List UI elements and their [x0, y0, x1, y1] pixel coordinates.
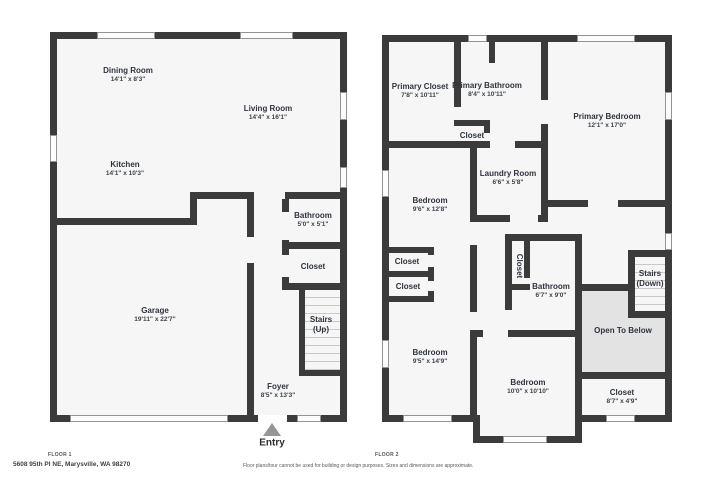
entry-label: Entry	[259, 438, 285, 449]
wall	[285, 192, 347, 199]
window-marker	[468, 35, 487, 42]
window-marker	[577, 35, 635, 42]
wall	[541, 124, 548, 222]
wall	[470, 330, 477, 422]
wall	[321, 415, 347, 422]
wall	[282, 242, 347, 249]
wall	[541, 42, 548, 100]
room-label-bedroom-upper-left: Bedroom 9'6" x 12'8"	[412, 196, 447, 214]
window-marker	[382, 340, 389, 368]
wall	[50, 218, 197, 225]
wall	[190, 192, 254, 199]
room-label-stairs-up: Stairs (Up)	[310, 315, 332, 335]
wall	[247, 199, 254, 237]
room-label-bedroom-bottom: Bedroom 10'0" x 10'10"	[507, 378, 549, 396]
wall	[489, 42, 495, 63]
room-label-closet-f1: Closet	[301, 262, 325, 272]
wall	[508, 330, 582, 337]
window-marker	[665, 92, 672, 120]
wall	[484, 120, 490, 133]
wall	[505, 284, 530, 290]
wall	[428, 247, 434, 255]
wall	[282, 283, 347, 290]
wall	[50, 415, 72, 422]
floor-plan-image: Dining Room 14'1" x 8'3" Living Room 14'…	[0, 0, 720, 479]
room-label-closet-b: Closet	[396, 282, 420, 292]
wall	[628, 311, 672, 318]
wall	[470, 330, 483, 337]
room-label-open-to-below: Open To Below	[594, 326, 652, 336]
address-text: 5608 95th Pl NE, Marysville, WA 98270	[13, 461, 130, 468]
window-marker	[606, 415, 635, 422]
window-marker	[665, 233, 672, 250]
wall	[382, 271, 433, 277]
wall	[470, 245, 477, 312]
room-label-stairs-down: Stairs (Down)	[636, 269, 663, 289]
wall	[282, 199, 289, 212]
room-label-closet-vertical: Closet	[514, 254, 524, 278]
window-marker	[403, 415, 452, 422]
room-label-foyer: Foyer 8'5" x 13'3"	[261, 382, 296, 400]
wall	[340, 32, 347, 422]
wall	[575, 330, 582, 443]
room-label-living: Living Room 14'4" x 16'1"	[244, 104, 292, 122]
floor2-tag: FLOOR 2	[375, 452, 399, 458]
room-label-closet-right: Closet 8'7" x 4'9"	[607, 388, 638, 406]
room-label-primary-bedroom: Primary Bedroom 12'1" x 17'0"	[573, 112, 640, 130]
room-label-primary-bathroom: Primary Bathroom 8'4" x 10'11"	[452, 81, 522, 99]
floor-area	[480, 415, 575, 436]
room-label-closet-a: Closet	[395, 257, 419, 267]
floor1-tag: FLOOR 1	[48, 452, 72, 458]
room-label-bedroom-lower-left: Bedroom 9'5" x 14'9"	[412, 348, 447, 366]
wall	[582, 284, 632, 291]
room-label-bathroom-f1: Bathroom 5'0" x 5'1"	[294, 211, 332, 229]
disclaimer-text: Floor plans/tour cannot be used for buil…	[243, 463, 473, 469]
wall	[470, 141, 477, 222]
room-label-laundry: Laundry Room 6'6" x 5'8"	[480, 169, 536, 187]
wall	[578, 372, 672, 379]
entry-arrow-icon	[263, 423, 281, 436]
room-label-hall-closet: Closet	[460, 131, 484, 141]
room-label-kitchen: Kitchen 14'1" x 10'3"	[106, 160, 144, 178]
room-label-primary-closet: Primary Closet 7'8" x 10'11"	[392, 82, 448, 100]
wall	[575, 234, 582, 337]
room-label-garage: Garage 19'11" x 22'7"	[134, 306, 175, 324]
wall	[299, 370, 347, 376]
window-marker	[297, 415, 321, 422]
room-label-dining: Dining Room 14'1" x 8'3"	[103, 66, 153, 84]
wall	[628, 250, 635, 318]
wall	[505, 234, 512, 310]
window-marker	[340, 167, 347, 188]
window-marker	[382, 170, 389, 197]
window-marker	[340, 92, 347, 120]
window-marker	[50, 135, 57, 162]
wall	[382, 247, 433, 253]
window-marker	[70, 415, 228, 422]
window-marker	[503, 436, 547, 443]
wall	[548, 200, 588, 207]
wall	[505, 234, 582, 241]
wall	[428, 291, 434, 302]
wall	[382, 296, 433, 302]
wall	[50, 32, 347, 39]
wall	[50, 32, 57, 422]
wall	[299, 290, 305, 376]
room-label-bathroom-f2: Bathroom 6'7" x 9'0"	[532, 282, 570, 300]
window-marker	[240, 32, 293, 39]
wall	[228, 415, 258, 422]
wall	[618, 200, 672, 207]
wall	[538, 215, 548, 222]
window-marker	[97, 32, 155, 39]
wall	[428, 267, 434, 281]
wall	[247, 263, 254, 415]
wall	[524, 241, 530, 278]
